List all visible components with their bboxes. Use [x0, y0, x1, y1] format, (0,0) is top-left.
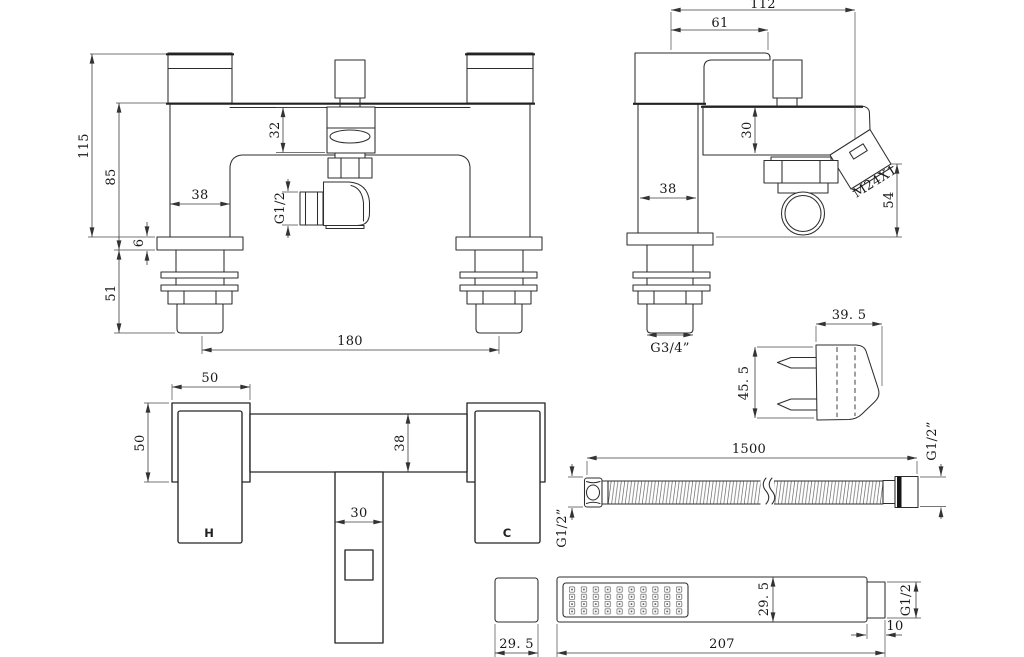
- dim-front-body-height: 85: [104, 168, 119, 185]
- handle-side: [635, 53, 770, 104]
- cold-label: C: [503, 526, 511, 540]
- drawing-canvas: 115 85 6 51 38 32 G1/2 180: [0, 0, 1024, 657]
- dim-side-handle-depth: 61: [711, 16, 728, 31]
- wall-bracket-view: 39. 5 45. 5: [737, 308, 882, 420]
- front-view: 115 85 6 51 38 32 G1/2 180: [77, 53, 542, 354]
- thick-edges-side: [633, 104, 863, 107]
- side-view: 112 61 30 38 M24X1 54 G3/4”: [627, 0, 902, 356]
- extension-lines: [88, 54, 499, 354]
- dim-plan-body-depth: 38: [393, 434, 408, 451]
- hose-oring-band: [897, 477, 902, 508]
- dim-front-cartridge-height: 32: [268, 121, 283, 138]
- under-deck-side: [627, 233, 713, 333]
- dim-side-total-depth: 112: [750, 0, 776, 12]
- diverter-neck: [335, 153, 365, 158]
- dim-front-outlet-thread: G1/2: [273, 192, 288, 225]
- dim-side-pillar-depth: 38: [659, 182, 676, 197]
- dim-plan-spout-width: 30: [350, 506, 367, 521]
- hose-right-cone: [883, 481, 895, 504]
- dim-plan-handle-width: 50: [201, 371, 218, 386]
- dim-handset-face-width: 29. 5: [499, 637, 534, 652]
- dim-front-pillar-width: 38: [191, 188, 208, 203]
- spout-aperture: [345, 550, 373, 580]
- dim-side-outlet-height: 54: [882, 191, 897, 208]
- diverter-knob-side: [773, 60, 802, 98]
- handset-end-view: [495, 578, 538, 622]
- hose-left-collar: [602, 481, 608, 504]
- spout-elbow-nut: [300, 192, 323, 225]
- outlet-nut-side: [764, 157, 838, 193]
- dim-front-deck-thickness: 6: [132, 239, 147, 248]
- bracket-pins: [778, 358, 818, 411]
- plan-view: H C 50 50 38 30: [133, 371, 545, 643]
- shower-hose-view: 1500 G1/2” G1/2”: [555, 421, 946, 547]
- diverter-nut: [328, 158, 372, 178]
- spout-elbow-lip: [326, 226, 364, 229]
- dim-plan-handle-depth: 50: [133, 434, 148, 451]
- knob-neck-side: [777, 98, 797, 106]
- dim-bracket-width: 39. 5: [832, 308, 867, 323]
- bracket-body: [816, 345, 879, 420]
- under-deck-right: [456, 237, 542, 333]
- technical-drawing-page: 115 85 6 51 38 32 G1/2 180: [0, 0, 1024, 657]
- outlet-ring-outer: [782, 192, 825, 235]
- handset-neck: [867, 582, 885, 618]
- dim-side-inlet-thread: G3/4”: [650, 341, 689, 356]
- dim-front-pillar-centres: 180: [337, 334, 363, 349]
- diverter-knob: [335, 60, 365, 98]
- hose-ribbing: [608, 481, 883, 504]
- dim-handset-neck-length: 10: [886, 619, 903, 634]
- hot-handle-lever: [178, 411, 242, 543]
- dim-hose-right-thread: G1/2”: [925, 421, 940, 460]
- dim-handset-body-height: 29. 5: [757, 582, 772, 617]
- pillar-side: [638, 104, 703, 233]
- hot-label: H: [204, 526, 214, 540]
- dim-hose-left-thread: G1/2”: [555, 508, 570, 547]
- dim-hose-length: 1500: [732, 442, 766, 457]
- body-bar-plan: [250, 414, 467, 472]
- spout-elbow-body: [324, 182, 370, 226]
- dim-bracket-height: 45. 5: [737, 366, 752, 401]
- dim-front-tail-length: 51: [104, 284, 119, 301]
- cold-handle-lever: [475, 411, 540, 543]
- front-dimensions: 115 85 6 51 38 32 G1/2 180: [77, 54, 499, 354]
- dim-handset-length: 207: [709, 637, 735, 652]
- dim-handset-thread: G1/2: [899, 584, 914, 617]
- dim-front-total-height: 115: [77, 133, 92, 159]
- under-deck-left: [157, 237, 243, 333]
- dim-side-body-height: 30: [740, 121, 755, 138]
- handset-nozzles: [569, 587, 684, 615]
- handset-view: 29. 5 207 29. 5 G1/2 10: [495, 577, 921, 657]
